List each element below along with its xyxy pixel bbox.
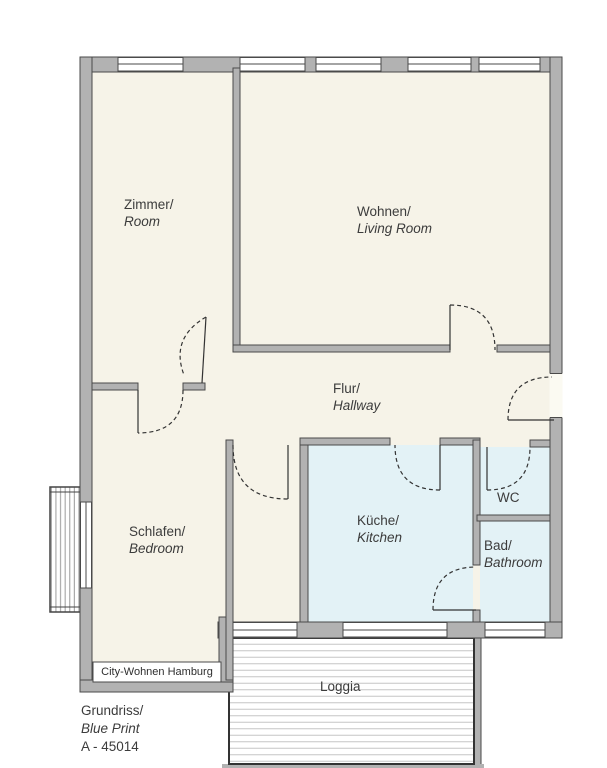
floor-plan: Zimmer/ Room Wohnen/ Living Room Flur/ H… [0,0,607,768]
room-label-kueche: Küche/ Kitchen [357,512,402,546]
room-label-loggia-de: Loggia [320,679,361,694]
caption-title-en: Blue Print [81,720,143,738]
room-areas [92,72,550,680]
watermark-label: City-Wohnen Hamburg [95,664,219,680]
room-label-wc: WC [497,489,520,506]
room-label-flur-en: Hallway [333,397,380,414]
room-label-bad-de: Bad/ [484,538,512,553]
room-label-flur: Flur/ Hallway [333,380,380,414]
room-label-bad-en: Bathroom [484,554,543,571]
room-label-zimmer: Zimmer/ Room [124,196,174,230]
room-label-schlafen-en: Bedroom [129,540,185,557]
room-label-wohnen-en: Living Room [357,220,432,237]
room-label-kueche-en: Kitchen [357,529,402,546]
loggia-area [222,630,484,768]
room-label-wohnen: Wohnen/ Living Room [357,203,432,237]
room-label-flur-de: Flur/ [333,381,360,396]
room-label-zimmer-de: Zimmer/ [124,197,174,212]
room-label-schlafen: Schlafen/ Bedroom [129,523,185,557]
floor-plan-drawing [0,0,607,768]
room-label-bad: Bad/ Bathroom [484,537,543,571]
plan-caption: Grundriss/ Blue Print A - 45014 [81,702,143,756]
entrance-opening [550,374,563,418]
room-label-wohnen-de: Wohnen/ [357,204,411,219]
room-label-wc-de: WC [497,490,520,505]
caption-title-de: Grundriss/ [81,702,143,720]
bay-window [50,487,83,612]
room-label-kueche-de: Küche/ [357,513,399,528]
caption-plan-number: A - 45014 [81,738,143,756]
room-label-zimmer-en: Room [124,213,174,230]
room-label-loggia: Loggia [320,678,361,695]
room-label-schlafen-de: Schlafen/ [129,524,185,539]
